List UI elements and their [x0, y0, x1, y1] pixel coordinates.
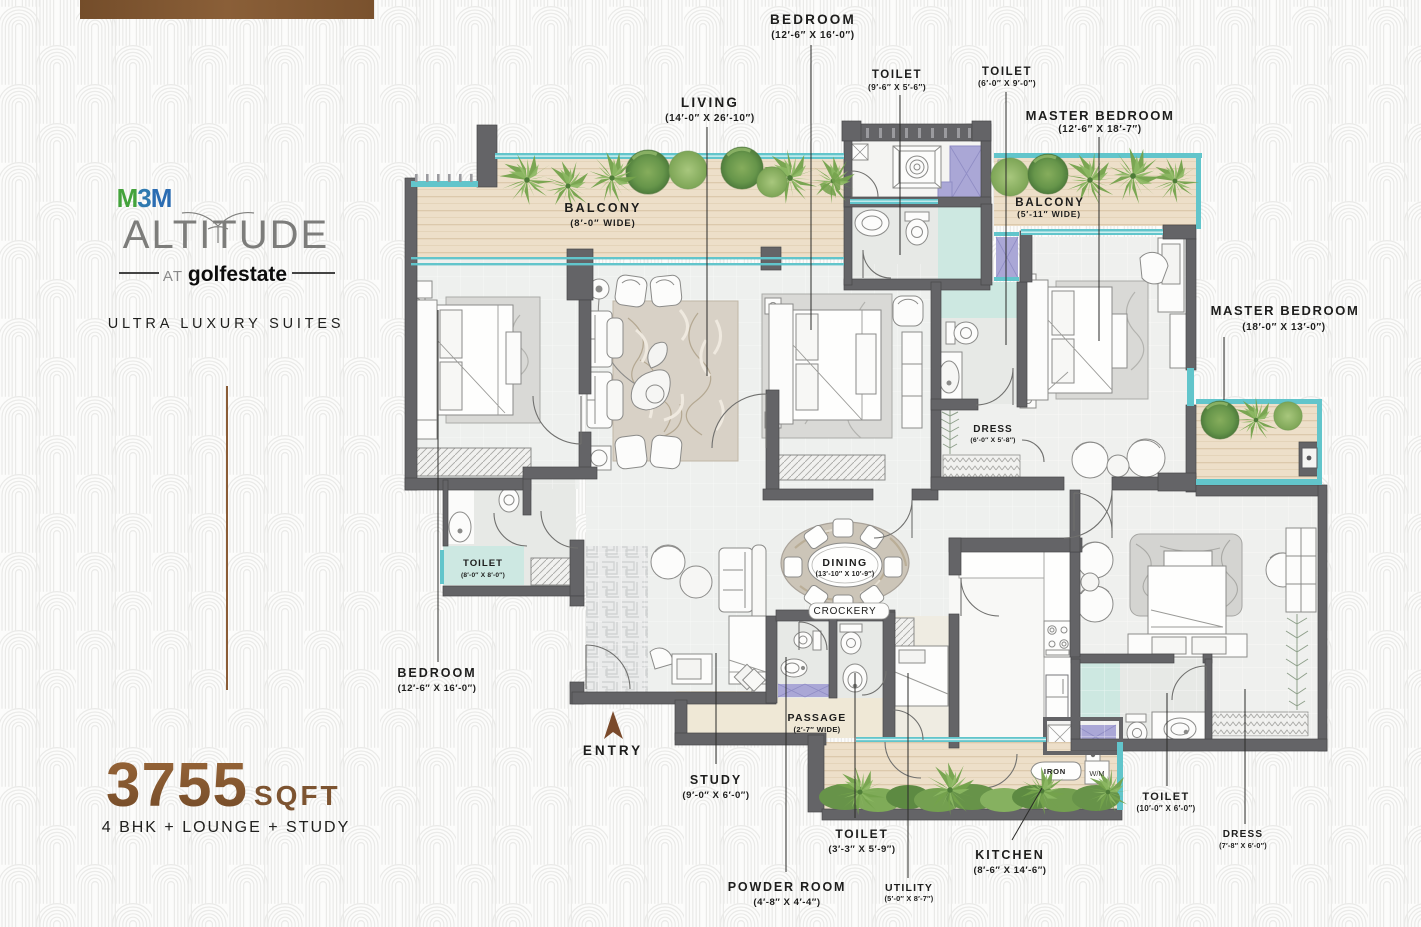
svg-text:(12′-6″ X 18′-7″): (12′-6″ X 18′-7″) — [1058, 124, 1142, 135]
svg-text:(8′-6″ X 14′-6″): (8′-6″ X 14′-6″) — [974, 865, 1047, 876]
svg-text:(4′-8″ X 4′-4″): (4′-8″ X 4′-4″) — [753, 897, 820, 908]
svg-text:TOILET: TOILET — [872, 69, 922, 81]
svg-text:(9′-0″ X 6′-0″): (9′-0″ X 6′-0″) — [682, 790, 749, 801]
svg-text:(12′-6″ X 16′-0″): (12′-6″ X 16′-0″) — [771, 30, 855, 41]
svg-text:(9′-6″ X 5′-6″): (9′-6″ X 5′-6″) — [868, 82, 926, 92]
svg-text:BALCONY: BALCONY — [564, 201, 641, 215]
svg-text:ENTRY: ENTRY — [583, 743, 643, 758]
svg-text:4 BHK + LOUNGE + STUDY: 4 BHK + LOUNGE + STUDY — [102, 819, 351, 836]
svg-text:(6′-0″ X 9′-0″): (6′-0″ X 9′-0″) — [978, 78, 1036, 88]
svg-text:(10′-0″ X 6′-0″): (10′-0″ X 6′-0″) — [1137, 804, 1196, 813]
svg-text:W/M: W/M — [1089, 769, 1104, 778]
svg-text:(3′-3″ X 5′-9″): (3′-3″ X 5′-9″) — [828, 844, 895, 855]
svg-text:PASSAGE: PASSAGE — [788, 712, 847, 724]
svg-text:DRESS: DRESS — [973, 424, 1012, 435]
svg-text:(14′-0″ X 26′-10″): (14′-0″ X 26′-10″) — [665, 113, 755, 124]
svg-text:TOILET: TOILET — [982, 66, 1032, 78]
svg-text:ULTRA LUXURY SUITES: ULTRA LUXURY SUITES — [108, 316, 345, 332]
svg-text:M3M: M3M — [117, 183, 172, 213]
svg-text:MASTER BEDROOM: MASTER BEDROOM — [1026, 108, 1175, 123]
svg-text:BALCONY: BALCONY — [1015, 197, 1084, 209]
svg-text:TOILET: TOILET — [463, 558, 503, 569]
svg-text:(13′-10″ X 10′-9″): (13′-10″ X 10′-9″) — [816, 571, 875, 578]
svg-text:POWDER ROOM: POWDER ROOM — [728, 880, 846, 894]
svg-text:CROCKERY: CROCKERY — [814, 606, 877, 617]
svg-text:IRON: IRON — [1044, 767, 1066, 776]
svg-text:LIVING: LIVING — [681, 95, 739, 110]
svg-text:UTILITY: UTILITY — [885, 882, 933, 894]
svg-text:(12′-6″ X 16′-0″): (12′-6″ X 16′-0″) — [398, 683, 477, 694]
svg-text:(2′-7″ WIDE): (2′-7″ WIDE) — [793, 725, 840, 734]
svg-text:(6′-0″ X 5′-8″): (6′-0″ X 5′-8″) — [970, 437, 1015, 444]
svg-text:(18′-0″ X 13′-0″): (18′-0″ X 13′-0″) — [1242, 322, 1326, 333]
svg-text:KITCHEN: KITCHEN — [975, 848, 1045, 862]
svg-text:BEDROOM: BEDROOM — [397, 666, 476, 680]
svg-text:BEDROOM: BEDROOM — [770, 12, 856, 27]
svg-text:SQFT: SQFT — [254, 780, 341, 811]
svg-text:3755: 3755 — [106, 751, 248, 820]
svg-text:TOILET: TOILET — [1142, 791, 1189, 803]
svg-text:MASTER BEDROOM: MASTER BEDROOM — [1211, 303, 1360, 318]
svg-text:TOILET: TOILET — [835, 827, 888, 841]
svg-text:DRESS: DRESS — [1223, 829, 1263, 840]
svg-text:(5′-0″ X 8′-7″): (5′-0″ X 8′-7″) — [885, 894, 934, 903]
svg-text:(7′-8″ X 6′-0″): (7′-8″ X 6′-0″) — [1219, 841, 1267, 850]
svg-text:(5′-11″ WIDE): (5′-11″ WIDE) — [1017, 209, 1081, 219]
svg-text:DINING: DINING — [822, 557, 867, 569]
svg-text:STUDY: STUDY — [690, 773, 742, 787]
svg-text:(8′-0″ WIDE): (8′-0″ WIDE) — [570, 217, 636, 228]
svg-text:(8′-0″ X 8′-0″): (8′-0″ X 8′-0″) — [461, 572, 505, 579]
